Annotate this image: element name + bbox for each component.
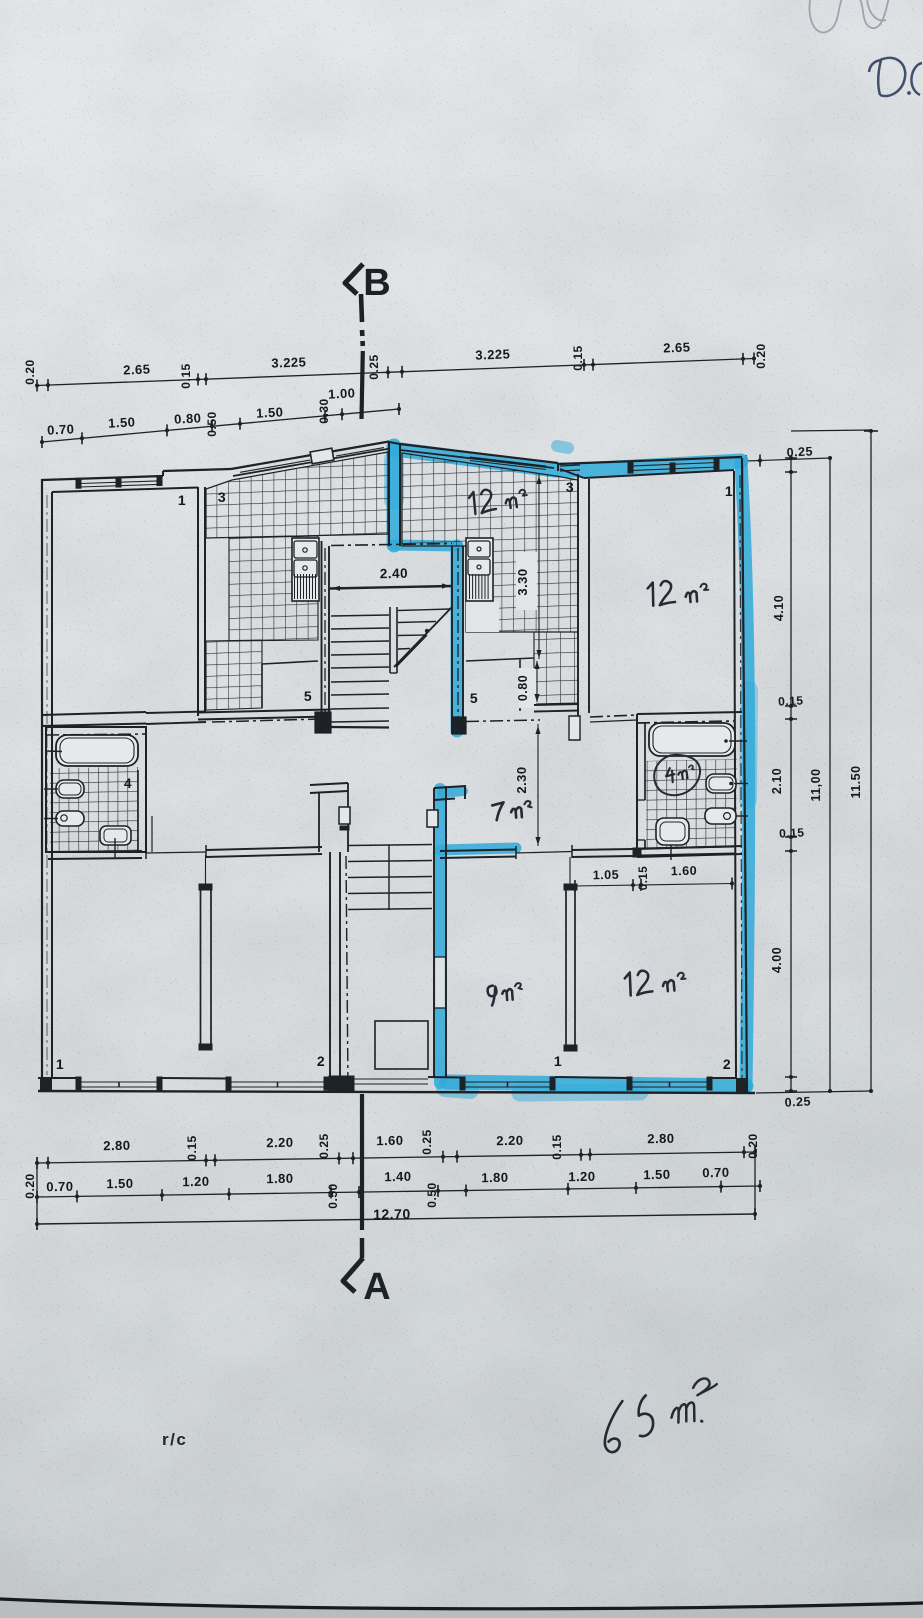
svg-text:0.20: 0.20: [754, 343, 768, 368]
svg-text:0.20: 0.20: [23, 1173, 37, 1198]
svg-text:2: 2: [317, 1053, 325, 1069]
svg-text:0.15: 0.15: [779, 825, 805, 840]
svg-text:4.00: 4.00: [770, 947, 784, 973]
svg-text:2.10: 2.10: [770, 768, 784, 794]
svg-text:0.70: 0.70: [46, 1179, 74, 1194]
svg-text:2.30: 2.30: [514, 766, 529, 793]
svg-text:5: 5: [470, 690, 478, 706]
svg-text:2.20: 2.20: [496, 1133, 524, 1148]
svg-text:1.20: 1.20: [568, 1169, 596, 1184]
svg-text:5: 5: [304, 688, 312, 704]
svg-text:4: 4: [124, 776, 132, 791]
svg-text:0.15: 0.15: [638, 866, 650, 890]
svg-text:0.50: 0.50: [326, 1183, 340, 1208]
svg-text:0.50: 0.50: [205, 411, 219, 436]
svg-text:3.225: 3.225: [475, 346, 511, 362]
svg-text:11.50: 11.50: [849, 765, 863, 798]
svg-text:4.10: 4.10: [772, 595, 786, 621]
svg-text:12.70: 12.70: [373, 1206, 411, 1223]
svg-text:0.70: 0.70: [702, 1165, 730, 1180]
svg-text:0.25: 0.25: [786, 444, 813, 459]
svg-text:3: 3: [566, 479, 574, 495]
svg-text:r/c: r/c: [162, 1430, 187, 1449]
svg-text:1: 1: [725, 483, 733, 499]
svg-text:0.25: 0.25: [317, 1133, 331, 1158]
svg-text:0.15: 0.15: [778, 693, 804, 708]
svg-text:1.50: 1.50: [643, 1167, 671, 1182]
svg-text:2.80: 2.80: [647, 1131, 675, 1146]
svg-text:0.15: 0.15: [185, 1135, 199, 1160]
svg-text:2.65: 2.65: [123, 362, 151, 378]
svg-text:1.60: 1.60: [376, 1133, 404, 1148]
svg-text:A: A: [363, 1266, 390, 1308]
svg-text:0.20: 0.20: [746, 1133, 760, 1158]
svg-text:B: B: [363, 262, 390, 304]
svg-text:1.40: 1.40: [384, 1169, 412, 1184]
svg-text:0.30: 0.30: [317, 398, 331, 423]
svg-text:0.15: 0.15: [179, 363, 193, 388]
svg-text:0.70: 0.70: [47, 421, 75, 437]
svg-text:11,00: 11,00: [809, 768, 823, 801]
svg-text:1.20: 1.20: [182, 1174, 210, 1189]
svg-text:3: 3: [218, 489, 226, 505]
svg-text:1: 1: [178, 492, 186, 508]
svg-text:1: 1: [56, 1056, 64, 1072]
svg-text:0.15: 0.15: [571, 345, 585, 370]
svg-text:0.80: 0.80: [516, 675, 530, 701]
svg-text:1.60: 1.60: [671, 864, 698, 878]
svg-text:3.225: 3.225: [271, 354, 307, 370]
svg-text:1: 1: [554, 1053, 562, 1069]
svg-text:1.80: 1.80: [266, 1171, 294, 1186]
svg-text:0.20: 0.20: [23, 359, 37, 384]
svg-text:2.65: 2.65: [663, 340, 691, 356]
svg-text:1.50: 1.50: [106, 1176, 134, 1191]
svg-text:1.80: 1.80: [481, 1170, 509, 1185]
svg-text:3.30: 3.30: [515, 568, 530, 595]
svg-text:0.25: 0.25: [784, 1094, 811, 1109]
svg-text:1.00: 1.00: [328, 385, 356, 401]
svg-text:1.50: 1.50: [108, 414, 136, 430]
svg-text:2.20: 2.20: [266, 1135, 294, 1150]
svg-text:0.25: 0.25: [420, 1129, 434, 1154]
svg-text:2.80: 2.80: [103, 1138, 131, 1153]
svg-text:2: 2: [723, 1056, 731, 1072]
svg-text:1.50: 1.50: [256, 404, 284, 420]
svg-text:0.50: 0.50: [425, 1182, 439, 1207]
svg-text:2.40: 2.40: [380, 566, 409, 581]
svg-text:0.25: 0.25: [367, 354, 381, 379]
svg-text:0.15: 0.15: [550, 1134, 564, 1159]
svg-text:1.05: 1.05: [593, 868, 620, 882]
svg-text:0.80: 0.80: [174, 410, 202, 426]
